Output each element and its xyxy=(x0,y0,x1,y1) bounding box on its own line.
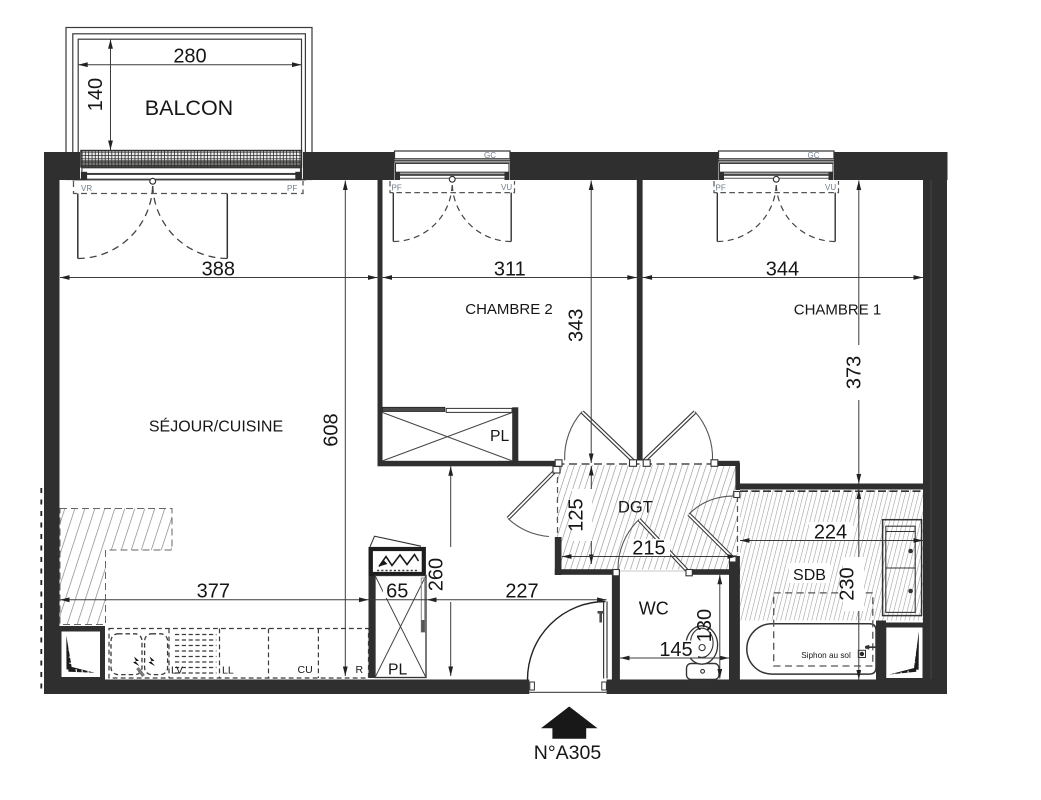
svg-text:SDB: SDB xyxy=(793,567,826,584)
svg-text:260: 260 xyxy=(426,558,448,591)
svg-text:377: 377 xyxy=(197,581,230,603)
svg-text:PF: PF xyxy=(392,184,402,193)
svg-text:CU: CU xyxy=(298,664,313,676)
svg-text:373: 373 xyxy=(843,356,865,389)
svg-text:PL: PL xyxy=(388,662,407,679)
svg-text:140: 140 xyxy=(85,78,107,111)
svg-text:608: 608 xyxy=(321,413,343,446)
svg-text:Siphon au sol: Siphon au sol xyxy=(801,651,851,660)
svg-text:VR: VR xyxy=(81,184,92,193)
svg-text:PL: PL xyxy=(490,428,509,445)
svg-text:SÉJOUR/CUISINE: SÉJOUR/CUISINE xyxy=(149,417,283,436)
svg-text:VU: VU xyxy=(825,183,836,192)
svg-text:230: 230 xyxy=(837,567,859,600)
svg-text:344: 344 xyxy=(766,259,799,281)
svg-text:125: 125 xyxy=(566,498,588,531)
svg-text:CHAMBRE 1: CHAMBRE 1 xyxy=(794,302,882,319)
svg-text:130: 130 xyxy=(694,609,716,642)
svg-text:WC: WC xyxy=(639,598,669,618)
svg-text:GC: GC xyxy=(484,151,496,160)
svg-text:224: 224 xyxy=(814,522,847,544)
svg-text:N°A305: N°A305 xyxy=(534,742,602,764)
svg-text:388: 388 xyxy=(202,259,235,281)
svg-text:215: 215 xyxy=(632,538,665,560)
svg-text:R: R xyxy=(356,664,364,676)
svg-text:BALCON: BALCON xyxy=(145,96,233,120)
svg-text:280: 280 xyxy=(173,46,206,68)
svg-text:PF: PF xyxy=(287,184,297,193)
svg-text:311: 311 xyxy=(494,259,526,281)
svg-text:LL: LL xyxy=(222,665,234,677)
svg-text:145: 145 xyxy=(659,639,692,661)
svg-text:GC: GC xyxy=(808,151,820,160)
svg-text:65: 65 xyxy=(386,581,408,603)
svg-text:PF: PF xyxy=(716,184,726,193)
svg-text:LV: LV xyxy=(171,665,183,677)
svg-text:VU: VU xyxy=(501,183,512,192)
svg-text:DGT: DGT xyxy=(618,498,653,516)
svg-text:343: 343 xyxy=(565,309,587,342)
svg-text:CHAMBRE 2: CHAMBRE 2 xyxy=(465,301,553,318)
svg-text:227: 227 xyxy=(505,581,538,603)
